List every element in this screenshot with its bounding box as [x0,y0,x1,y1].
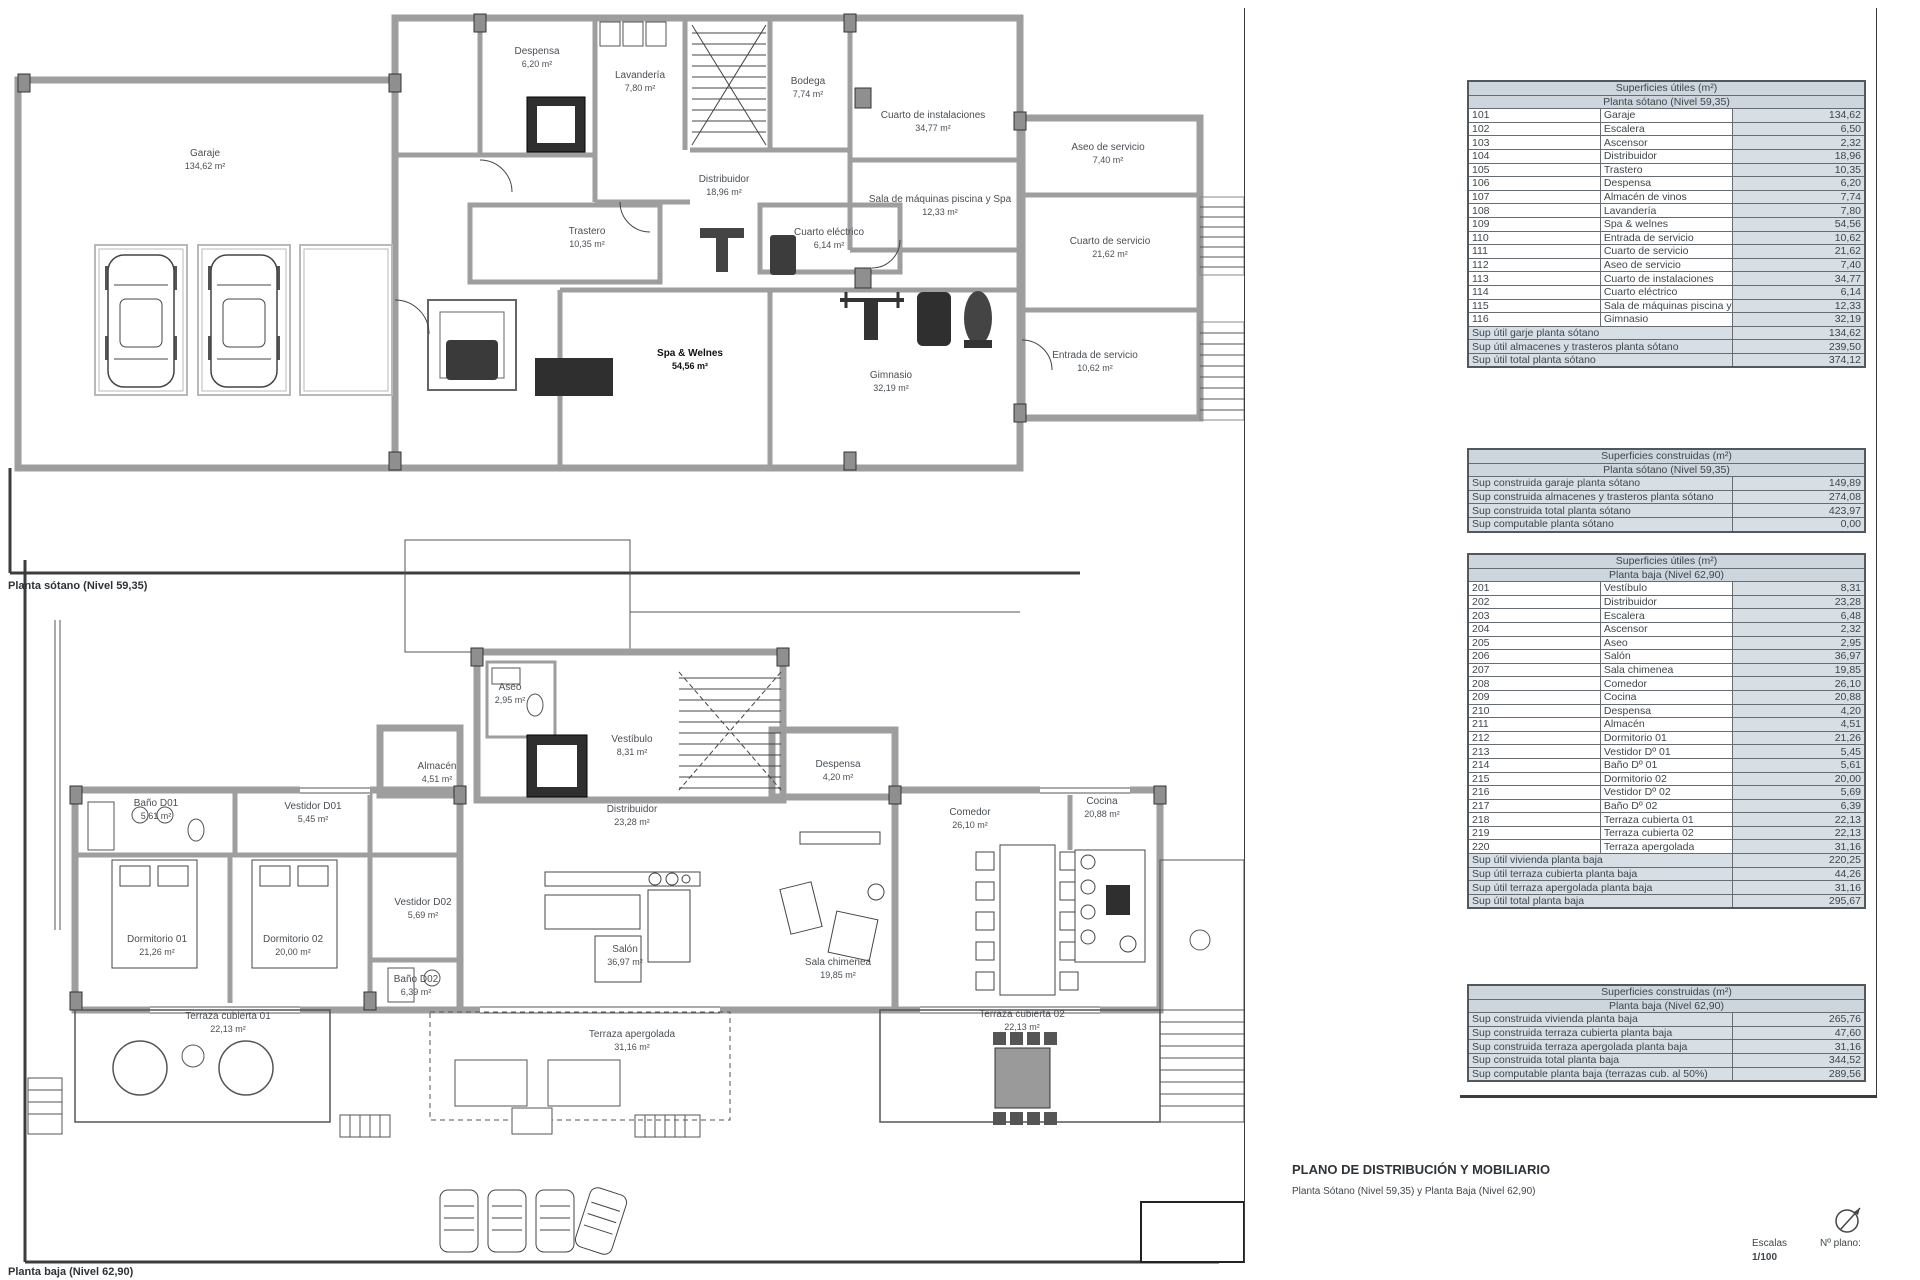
gym-equipment-icons [840,291,992,348]
room-area-value: 7,40 [1733,258,1865,272]
pergola-furniture [455,1060,620,1134]
table-total-row: Sup útil almacenes y trasteros planta só… [1468,340,1865,354]
room-name: Dormitorio 02 [1600,772,1732,786]
room-name: Baño Dº 02 [1600,799,1732,813]
room-area-label: 6,14 m² [794,240,864,251]
table-row: 109Spa & welnes54,56 [1468,217,1865,231]
room-name-label: Sala chimenea [805,957,871,970]
room-name-label: Lavandería [615,70,665,83]
room-code: 215 [1468,772,1600,786]
table-superficies-utiles-sotano: Superficies útiles (m²)Planta sótano (Ni… [1467,80,1866,368]
car-icon [208,255,280,387]
room-code: 105 [1468,163,1600,177]
table-row: 113Cuarto de instalaciones34,77 [1468,272,1865,286]
room-label: Cuarto de instalaciones34,77 m² [881,110,986,134]
room-area-value: 31,16 [1733,840,1865,854]
room-area-label: 5,45 m² [284,814,341,825]
room-name-label: Dormitorio 01 [127,934,187,947]
table-row: 208Comedor26,10 [1468,677,1865,691]
room-label: Gimnasio32,19 m² [870,370,912,394]
room-name-label: Terraza cubierta 02 [979,1009,1065,1022]
table-row: 218Terraza cubierta 0122,13 [1468,813,1865,827]
total-value: 265,76 [1733,1013,1865,1027]
room-area-label: 22,13 m² [979,1022,1065,1033]
scale-label: Escalas [1752,1238,1787,1249]
pool-machine-icons [700,228,796,275]
room-name: Ascensor [1600,136,1732,150]
room-code: 109 [1468,217,1600,231]
table-total-row: Sup computable planta sótano0,00 [1468,517,1865,531]
table-subtitle-row: Planta sótano (Nivel 59,35) [1468,95,1865,109]
room-label: Lavandería7,80 m² [615,70,665,94]
room-area-label: 19,85 m² [805,970,871,981]
table-total-row: Sup computable planta baja (terrazas cub… [1468,1067,1865,1081]
total-label: Sup útil garje planta sótano [1468,326,1733,340]
room-label: Cocina20,88 m² [1084,796,1120,820]
table-row: 212Dormitorio 0121,26 [1468,731,1865,745]
room-label: Dormitorio 0121,26 m² [127,934,187,958]
terrace-steps [1160,1010,1244,1122]
total-value: 47,60 [1733,1026,1865,1040]
room-name: Cuarto de instalaciones [1600,272,1732,286]
room-name-label: Comedor [949,807,990,820]
pool-edge [1160,860,1244,1010]
room-code: 213 [1468,745,1600,759]
room-code: 214 [1468,758,1600,772]
room-area-label: 134,62 m² [185,161,226,172]
table-row: 206Salón36,97 [1468,650,1865,664]
room-area-value: 5,45 [1733,745,1865,759]
room-name-label: Cuarto eléctrico [794,227,864,240]
room-name: Trastero [1600,163,1732,177]
room-code: 205 [1468,636,1600,650]
scale-value: 1/100 [1752,1252,1777,1263]
room-area-value: 2,32 [1733,136,1865,150]
room-name-label: Terraza apergolada [589,1029,675,1042]
room-code: 106 [1468,177,1600,191]
room-area-value: 20,00 [1733,772,1865,786]
room-area-label: 10,62 m² [1052,363,1138,374]
room-name-label: Baño D02 [394,974,438,987]
room-area-label: 22,13 m² [185,1024,271,1035]
surfaces-table: Superficies útiles (m²)Planta sótano (Ni… [1467,80,1866,368]
total-value: 220,25 [1733,854,1865,868]
room-code: 102 [1468,122,1600,136]
outdoor-dining-icon [993,1032,1057,1125]
room-label: Sala de máquinas piscina y Spa12,33 m² [869,194,1011,218]
room-area-value: 7,74 [1733,190,1865,204]
total-label: Sup útil terraza cubierta planta baja [1468,867,1733,881]
room-label: Baño D026,39 m² [394,974,438,998]
round-chair-icons [113,1041,273,1095]
north-arrow-icon [1830,1204,1870,1238]
step-box [1141,1202,1244,1262]
room-name-label: Gimnasio [870,370,912,383]
room-area-value: 32,19 [1733,313,1865,327]
total-value: 374,12 [1733,353,1865,367]
room-name: Aseo de servicio [1600,258,1732,272]
room-code: 216 [1468,786,1600,800]
room-name-label: Despensa [514,46,559,59]
room-area-value: 4,51 [1733,718,1865,732]
elevator-icon [527,735,587,797]
room-name: Baño Dº 01 [1600,758,1732,772]
room-name-label: Distribuidor [699,174,750,187]
sheet-title: PLANO DE DISTRIBUCIÓN Y MOBILIARIO [1292,1162,1550,1177]
room-area-value: 10,35 [1733,163,1865,177]
room-area-label: 54,56 m² [657,361,723,372]
total-label: Sup computable planta baja (terrazas cub… [1468,1067,1733,1081]
table-total-row: Sup útil vivienda planta baja220,25 [1468,854,1865,868]
room-name: Vestidor Dº 02 [1600,786,1732,800]
table-title-row: Superficies construidas (m²) [1468,449,1865,463]
room-area-value: 6,50 [1733,122,1865,136]
room-name: Comedor [1600,677,1732,691]
table-row: 107Almacén de vinos7,74 [1468,190,1865,204]
table-row: 216Vestidor Dº 025,69 [1468,786,1865,800]
room-label: Cuarto eléctrico6,14 m² [794,227,864,251]
table-row: 201Vestíbulo8,31 [1468,582,1865,596]
room-name: Terraza cubierta 02 [1600,826,1732,840]
room-code: 206 [1468,650,1600,664]
total-value: 239,50 [1733,340,1865,354]
room-name-label: Cocina [1084,796,1120,809]
room-label: Entrada de servicio10,62 m² [1052,350,1138,374]
room-name: Vestidor Dº 01 [1600,745,1732,759]
room-area-label: 8,31 m² [611,747,652,758]
room-area-label: 31,16 m² [589,1042,675,1053]
room-area-label: 32,19 m² [870,383,912,394]
room-area-value: 134,62 [1733,109,1865,123]
room-name: Cocina [1600,690,1732,704]
room-name: Salón [1600,650,1732,664]
room-name: Vestíbulo [1600,582,1732,596]
total-value: 274,08 [1733,490,1865,504]
plan-number-label: Nº plano: [1820,1238,1861,1249]
room-label: Aseo de servicio7,40 m² [1071,142,1144,166]
table-row: 104Distribuidor18,96 [1468,149,1865,163]
table-total-row: Sup construida garaje planta sótano149,8… [1468,477,1865,491]
room-code: 116 [1468,313,1600,327]
room-name: Dormitorio 01 [1600,731,1732,745]
total-label: Sup útil terraza apergolada planta baja [1468,881,1733,895]
room-area-value: 34,77 [1733,272,1865,286]
room-name: Garaje [1600,109,1732,123]
room-code: 220 [1468,840,1600,854]
car-icon [105,255,177,387]
table-row: 219Terraza cubierta 0222,13 [1468,826,1865,840]
room-code: 111 [1468,245,1600,259]
table-title: Superficies útiles (m²) [1468,554,1865,568]
kitchen-island-icon [1075,850,1145,962]
total-label: Sup construida terraza apergolada planta… [1468,1040,1733,1054]
room-area-label: 10,35 m² [569,239,606,250]
room-name-label: Sala de máquinas piscina y Spa [869,194,1011,207]
room-area-value: 2,32 [1733,622,1865,636]
plan-baja-drawing [0,500,1260,1280]
room-code: 217 [1468,799,1600,813]
panel-frame-vline [1876,8,1877,1097]
sotano-walls [18,18,1200,468]
room-code: 210 [1468,704,1600,718]
room-code: 114 [1468,285,1600,299]
room-area-label: 12,33 m² [869,207,1011,218]
room-name: Despensa [1600,177,1732,191]
table-superficies-construidas-baja: Superficies construidas (m²)Planta baja … [1467,984,1866,1082]
sun-lounger-icons [440,1186,629,1257]
room-label: Aseo2,95 m² [495,682,526,706]
table-total-row: Sup útil terraza cubierta planta baja44,… [1468,867,1865,881]
total-value: 31,16 [1733,881,1865,895]
room-label: Bodega7,74 m² [791,76,825,100]
room-label: Comedor26,10 m² [949,807,990,831]
stairs-icon [679,672,781,790]
room-name: Spa & welnes [1600,217,1732,231]
room-area-label: 4,20 m² [815,772,860,783]
room-name-label: Vestidor D01 [284,801,341,814]
exterior-stairs [1200,197,1244,420]
total-value: 289,56 [1733,1067,1865,1081]
room-name: Almacén [1600,718,1732,732]
table-row: 102Escalera6,50 [1468,122,1865,136]
room-name-label: Trastero [569,226,606,239]
table-row: 207Sala chimenea19,85 [1468,663,1865,677]
table-subtitle: Planta sótano (Nivel 59,35) [1468,95,1865,109]
total-value: 44,26 [1733,867,1865,881]
table-row: 203Escalera6,48 [1468,609,1865,623]
room-area-label: 23,28 m² [607,817,658,828]
table-total-row: Sup construida terraza cubierta planta b… [1468,1026,1865,1040]
room-label: Garaje134,62 m² [185,148,226,172]
room-area-value: 21,26 [1733,731,1865,745]
total-label: Sup construida garaje planta sótano [1468,477,1733,491]
room-name-label: Cuarto de instalaciones [881,110,986,123]
room-label: Spa & Welnes54,56 m² [657,348,723,372]
room-code: 219 [1468,826,1600,840]
room-name: Almacén de vinos [1600,190,1732,204]
table-title: Superficies construidas (m²) [1468,985,1865,999]
table-row: 217Baño Dº 026,39 [1468,799,1865,813]
room-label: Sala chimenea19,85 m² [805,957,871,981]
table-row: 204Ascensor2,32 [1468,622,1865,636]
room-area-value: 36,97 [1733,650,1865,664]
dining-table-icon [976,845,1078,995]
room-name: Escalera [1600,609,1732,623]
table-title: Superficies útiles (m²) [1468,81,1865,95]
room-name-label: Cuarto de servicio [1070,236,1151,249]
room-name-label: Terraza cubierta 01 [185,1011,271,1024]
room-area-value: 22,13 [1733,813,1865,827]
total-label: Sup construida terraza cubierta planta b… [1468,1026,1733,1040]
table-row: 210Despensa4,20 [1468,704,1865,718]
table-row: 116Gimnasio32,19 [1468,313,1865,327]
room-area-value: 12,33 [1733,299,1865,313]
stairs-icon [692,25,766,145]
room-area-value: 20,88 [1733,690,1865,704]
room-code: 112 [1468,258,1600,272]
room-label: Dormitorio 0220,00 m² [263,934,323,958]
room-code: 211 [1468,718,1600,732]
room-label: Baño D015,61 m² [134,798,178,822]
total-value: 31,16 [1733,1040,1865,1054]
total-label: Sup construida total planta baja [1468,1053,1733,1067]
room-name: Ascensor [1600,622,1732,636]
drawing-sheet: Garaje134,62 m² Despensa6,20 m² Lavander… [0,0,1920,1280]
room-area-label: 18,96 m² [699,187,750,198]
room-area-value: 6,20 [1733,177,1865,191]
table-row: 202Distribuidor23,28 [1468,595,1865,609]
room-code: 104 [1468,149,1600,163]
table-superficies-utiles-baja: Superficies útiles (m²)Planta baja (Nive… [1467,553,1866,909]
room-area-value: 21,62 [1733,245,1865,259]
room-code: 204 [1468,622,1600,636]
room-code: 108 [1468,204,1600,218]
room-area-value: 4,20 [1733,704,1865,718]
table-row: 220Terraza apergolada31,16 [1468,840,1865,854]
table-superficies-construidas-sotano: Superficies construidas (m²)Planta sótan… [1467,448,1866,533]
room-area-label: 20,88 m² [1084,809,1120,820]
room-area-value: 7,80 [1733,204,1865,218]
room-code: 203 [1468,609,1600,623]
table-subtitle-row: Planta sótano (Nivel 59,35) [1468,463,1865,477]
room-name: Terraza apergolada [1600,840,1732,854]
room-name: Entrada de servicio [1600,231,1732,245]
room-name-label: Salón [607,944,643,957]
room-name: Distribuidor [1600,595,1732,609]
table-row: 110Entrada de servicio10,62 [1468,231,1865,245]
room-name-label: Baño D01 [134,798,178,811]
room-name-label: Vestidor D02 [394,897,451,910]
room-label: Despensa4,20 m² [815,759,860,783]
table-row: 205Aseo2,95 [1468,636,1865,650]
room-area-value: 8,31 [1733,582,1865,596]
sheet-frame-vline [1244,8,1245,1262]
spa-pool-icon [535,358,613,396]
room-label: Vestidor D015,45 m² [284,801,341,825]
table-row: 115Sala de máquinas piscina y spa12,33 [1468,299,1865,313]
room-label: Salón36,97 m² [607,944,643,968]
room-name-label: Aseo de servicio [1071,142,1144,155]
sauna-icon [428,300,516,390]
room-area-label: 2,95 m² [495,695,526,706]
panel-frame-hline [1460,1095,1877,1098]
surfaces-table: Superficies útiles (m²)Planta baja (Nive… [1467,553,1866,909]
room-name: Sala chimenea [1600,663,1732,677]
table-total-row: Sup útil garje planta sótano134,62 [1468,326,1865,340]
room-code: 113 [1468,272,1600,286]
table-total-row: Sup útil total planta sótano374,12 [1468,353,1865,367]
surfaces-table: Superficies construidas (m²)Planta baja … [1467,984,1866,1082]
room-area-value: 23,28 [1733,595,1865,609]
total-label: Sup útil almacenes y trasteros planta só… [1468,340,1733,354]
room-label: Trastero10,35 m² [569,226,606,250]
table-total-row: Sup útil total planta baja295,67 [1468,894,1865,908]
room-area-value: 26,10 [1733,677,1865,691]
room-label: Vestidor D025,69 m² [394,897,451,921]
room-label: Terraza apergolada31,16 m² [589,1029,675,1053]
room-area-value: 5,69 [1733,786,1865,800]
table-total-row: Sup construida almacenes y trasteros pla… [1468,490,1865,504]
table-row: 111Cuarto de servicio21,62 [1468,245,1865,259]
table-row: 108Lavandería7,80 [1468,204,1865,218]
total-label: Sup útil vivienda planta baja [1468,854,1733,868]
room-label: Distribuidor23,28 m² [607,804,658,828]
room-code: 218 [1468,813,1600,827]
room-area-label: 21,26 m² [127,947,187,958]
room-area-value: 18,96 [1733,149,1865,163]
total-value: 149,89 [1733,477,1865,491]
room-name-label: Spa & Welnes [657,348,723,361]
elevator-icon [527,97,585,152]
table-subtitle-row: Planta baja (Nivel 62,90) [1468,999,1865,1013]
room-area-label: 5,61 m² [134,811,178,822]
room-area-label: 34,77 m² [881,123,986,134]
table-row: 214Baño Dº 015,61 [1468,758,1865,772]
room-area-value: 6,48 [1733,609,1865,623]
room-label: Despensa6,20 m² [514,46,559,70]
total-label: Sup construida vivienda planta baja [1468,1013,1733,1027]
table-row: 103Ascensor2,32 [1468,136,1865,150]
table-total-row: Sup construida vivienda planta baja265,7… [1468,1013,1865,1027]
room-area-value: 19,85 [1733,663,1865,677]
room-area-value: 22,13 [1733,826,1865,840]
table-total-row: Sup construida terraza apergolada planta… [1468,1040,1865,1054]
table-row: 211Almacén4,51 [1468,718,1865,732]
room-area-label: 4,51 m² [418,774,457,785]
room-name-label: Garaje [185,148,226,161]
table-title-row: Superficies útiles (m²) [1468,81,1865,95]
room-name: Terraza cubierta 01 [1600,813,1732,827]
table-total-row: Sup útil terraza apergolada planta baja3… [1468,881,1865,895]
room-name-label: Vestíbulo [611,734,652,747]
room-area-label: 20,00 m² [263,947,323,958]
room-code: 207 [1468,663,1600,677]
room-name: Sala de máquinas piscina y spa [1600,299,1732,313]
room-area-label: 7,74 m² [791,89,825,100]
room-name-label: Distribuidor [607,804,658,817]
room-name-label: Dormitorio 02 [263,934,323,947]
room-name-label: Despensa [815,759,860,772]
room-code: 103 [1468,136,1600,150]
table-row: 105Trastero10,35 [1468,163,1865,177]
total-label: Sup construida total planta sótano [1468,504,1733,518]
caption-planta-baja: Planta baja (Nivel 62,90) [8,1266,133,1278]
table-subtitle: Planta baja (Nivel 62,90) [1468,999,1865,1013]
room-label: Terraza cubierta 0122,13 m² [185,1011,271,1035]
room-code: 115 [1468,299,1600,313]
room-code: 208 [1468,677,1600,691]
room-name-label: Aseo [495,682,526,695]
table-total-row: Sup construida total planta baja344,52 [1468,1053,1865,1067]
room-name: Lavandería [1600,204,1732,218]
room-area-value: 54,56 [1733,217,1865,231]
total-value: 423,97 [1733,504,1865,518]
total-label: Sup construida almacenes y trasteros pla… [1468,490,1733,504]
table-title: Superficies construidas (m²) [1468,449,1865,463]
room-code: 101 [1468,109,1600,123]
table-row: 101Garaje134,62 [1468,109,1865,123]
table-title-row: Superficies útiles (m²) [1468,554,1865,568]
table-row: 209Cocina20,88 [1468,690,1865,704]
room-name-label: Bodega [791,76,825,89]
room-label: Almacén4,51 m² [418,761,457,785]
room-name: Cuarto de servicio [1600,245,1732,259]
room-code: 209 [1468,690,1600,704]
total-label: Sup computable planta sótano [1468,517,1733,531]
table-row: 112Aseo de servicio7,40 [1468,258,1865,272]
room-name: Aseo [1600,636,1732,650]
room-area-label: 36,97 m² [607,957,643,968]
